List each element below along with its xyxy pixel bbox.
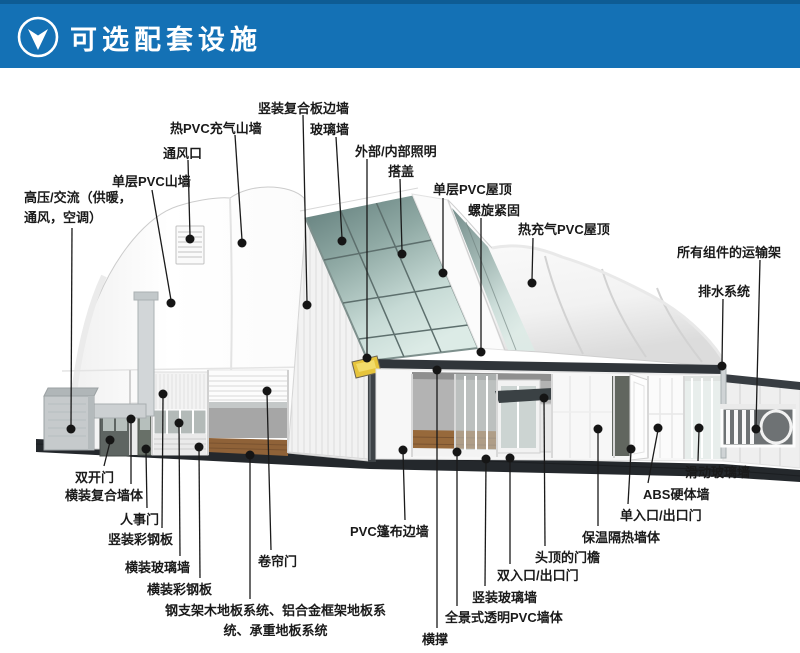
roller-shutter-door	[208, 370, 288, 456]
dot-vent	[186, 235, 195, 244]
dot-screw-fastening	[477, 348, 486, 357]
corner-post	[368, 361, 376, 462]
dot-hot-air-pvc-roof	[528, 279, 537, 288]
dot-drainage	[718, 362, 727, 371]
leader-line-horizontal-steel-panel	[199, 449, 200, 578]
leader-line-vertical-glass-wall	[485, 461, 486, 586]
dot-single-entry-exit-door	[627, 445, 636, 454]
dot-overhead-door-eave	[540, 394, 549, 403]
dot-abs-hard-wall	[654, 424, 663, 433]
dot-horizontal-glass-wall	[175, 419, 184, 428]
dot-personnel-door	[142, 445, 151, 454]
dot-roller-door	[263, 387, 272, 396]
dot-double-entry-exit-door	[506, 454, 515, 463]
dot-panoramic-pvc-wall	[453, 448, 462, 457]
dot-single-pvc-gable	[167, 299, 176, 308]
tent-diagram	[0, 0, 800, 653]
dot-double-door	[106, 436, 115, 445]
entry-ramp	[540, 404, 552, 452]
dot-hvac	[67, 425, 76, 434]
leader-line-drainage	[722, 299, 723, 363]
dot-insulated-wall	[594, 425, 603, 434]
dot-hot-pvc-inflatable-gable	[238, 239, 247, 248]
dot-sliding-glass-wall	[695, 424, 704, 433]
dot-floor-systems	[246, 451, 255, 460]
sliding-glass-section	[684, 376, 723, 459]
dot-vertical-composite-side-wall	[303, 301, 312, 310]
dot-transport-rack	[752, 425, 761, 434]
vertical-glass-section	[455, 374, 497, 450]
front-wall	[376, 368, 726, 461]
dot-horizontal-steel-panel	[195, 443, 204, 452]
dot-cross-brace	[433, 366, 442, 375]
dot-overlap-cover	[398, 250, 407, 259]
abs-hard-wall-section	[648, 376, 684, 458]
insulated-wall-section	[552, 374, 614, 458]
dot-vertical-steel-panel	[159, 390, 168, 399]
dot-glass-wall	[338, 237, 347, 246]
dot-lighting	[363, 354, 372, 363]
dot-pvc-tarp-side-wall	[399, 446, 408, 455]
dot-horizontal-composite-wall	[127, 415, 136, 424]
leader-line-personnel-door	[146, 451, 147, 508]
dot-vertical-glass-wall	[482, 455, 491, 464]
dot-single-pvc-roof	[439, 269, 448, 278]
page: 可选配套设施	[0, 0, 800, 653]
